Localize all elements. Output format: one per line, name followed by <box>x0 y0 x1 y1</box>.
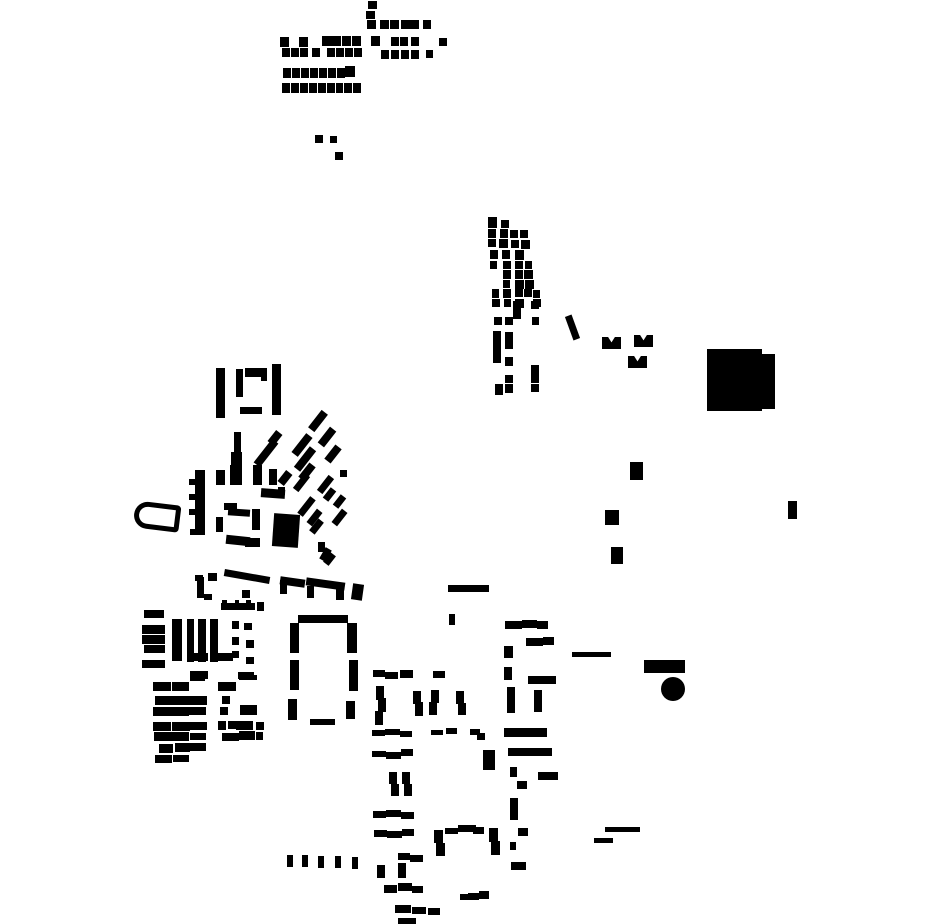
building-footprint <box>282 48 290 57</box>
building-footprint <box>503 261 511 269</box>
building-footprint <box>468 893 479 900</box>
building-footprint <box>483 750 495 770</box>
building-footprint <box>511 240 519 248</box>
building-footprint <box>524 270 533 279</box>
building-footprint <box>412 907 426 914</box>
building-footprint <box>605 510 619 525</box>
building-footprint <box>504 667 512 680</box>
building-footprint <box>492 289 499 298</box>
building-footprint <box>272 513 300 548</box>
building-footprint <box>525 261 532 269</box>
building-footprint <box>429 702 437 715</box>
building-footprint <box>308 410 328 432</box>
building-footprint <box>372 730 385 736</box>
building-footprint <box>353 83 361 93</box>
building-footprint <box>505 332 513 340</box>
building-footprint <box>257 602 264 611</box>
building-footprint <box>318 427 337 448</box>
building-footprint <box>448 585 489 592</box>
building-footprint <box>398 863 406 878</box>
building-footprint <box>533 290 540 298</box>
building-footprint <box>216 517 223 532</box>
building-footprint <box>503 280 510 288</box>
building-footprint <box>367 20 376 29</box>
building-footprint <box>398 918 416 924</box>
building-footprint <box>389 772 397 784</box>
building-footprint <box>310 68 318 78</box>
building-footprint <box>256 722 264 730</box>
building-footprint <box>377 865 385 878</box>
building-footprint <box>189 707 206 715</box>
building-footprint <box>349 660 358 691</box>
building-footprint <box>531 365 539 374</box>
building-footprint <box>385 672 398 679</box>
building-footprint-map <box>0 0 930 924</box>
building-footprint <box>309 83 317 93</box>
building-footprint <box>446 728 457 734</box>
building-footprint <box>788 501 797 519</box>
building-footprint <box>283 68 291 78</box>
building-footprint <box>189 494 195 500</box>
building-footprint <box>302 855 308 867</box>
building-footprint <box>173 696 190 705</box>
building-footprint <box>479 891 489 899</box>
building-footprint <box>707 349 762 411</box>
building-footprint <box>605 827 640 832</box>
building-footprint <box>280 37 289 47</box>
building-footprint <box>401 749 413 756</box>
building-footprint <box>336 48 344 57</box>
building-footprint <box>515 270 523 279</box>
building-footprint <box>373 670 385 677</box>
building-footprint <box>331 36 341 46</box>
building-footprint <box>510 842 516 850</box>
building-footprint <box>291 83 299 93</box>
building-footprint <box>236 369 243 397</box>
building-footprint <box>428 908 440 915</box>
building-footprint <box>543 637 554 645</box>
building-footprint <box>515 289 523 297</box>
building-footprint <box>300 83 308 93</box>
building-footprint <box>190 722 207 730</box>
building-footprint <box>228 508 250 517</box>
building-footprint <box>351 583 364 600</box>
building-footprint <box>532 317 539 325</box>
building-footprint <box>490 250 498 259</box>
building-footprint <box>222 696 230 704</box>
building-footprint <box>412 886 423 893</box>
building-footprint <box>261 369 267 381</box>
building-footprint <box>239 731 255 740</box>
building-footprint <box>534 690 542 712</box>
building-footprint <box>494 317 502 325</box>
building-footprint <box>190 675 205 681</box>
building-footprint <box>433 671 445 678</box>
building-footprint <box>144 610 164 618</box>
building-footprint <box>232 637 239 645</box>
building-footprint <box>520 230 528 238</box>
building-footprint <box>190 743 206 751</box>
building-footprint <box>222 733 239 741</box>
building-footprint <box>515 250 524 260</box>
building-footprint <box>398 883 412 891</box>
building-footprint <box>368 1 377 9</box>
building-footprint <box>411 37 419 46</box>
building-footprint <box>287 855 293 867</box>
building-footprint <box>423 20 431 29</box>
building-footprint <box>400 731 412 737</box>
building-footprint <box>218 682 236 691</box>
building-footprint <box>401 812 414 819</box>
building-footprint <box>142 660 165 668</box>
building-footprint <box>460 894 468 900</box>
building-footprint <box>630 462 643 480</box>
building-footprint <box>307 586 314 598</box>
building-footprint <box>477 733 485 740</box>
building-footprint <box>153 722 171 731</box>
building-footprint <box>513 310 521 319</box>
building-footprint <box>515 261 523 269</box>
building-footprint <box>190 696 207 705</box>
building-footprint <box>385 729 400 735</box>
building-footprint <box>493 331 501 339</box>
building-footprint <box>503 270 511 279</box>
building-footprint <box>354 48 362 57</box>
building-footprint <box>245 538 260 547</box>
building-footprint <box>401 50 409 59</box>
building-footprint <box>439 38 447 46</box>
building-footprint <box>372 751 386 757</box>
building-footprint <box>400 670 413 678</box>
building-footprint <box>510 230 518 238</box>
building-footprint <box>491 841 500 855</box>
building-footprint <box>352 857 358 869</box>
building-footprint <box>431 730 443 735</box>
building-footprint <box>510 798 518 820</box>
building-footprint <box>504 646 513 658</box>
building-footprint <box>240 407 262 414</box>
building-footprint <box>172 707 189 716</box>
building-footprint <box>371 36 380 46</box>
building-footprint <box>505 317 513 325</box>
building-footprint <box>330 136 337 143</box>
building-footprint <box>402 829 414 836</box>
building-footprint <box>501 220 509 228</box>
building-footprint <box>142 635 165 644</box>
building-footprint <box>400 37 408 46</box>
building-footprint <box>188 653 208 661</box>
building-footprint <box>224 569 271 584</box>
building-footprint <box>493 355 501 363</box>
building-footprint <box>505 384 513 393</box>
notched-building-footprint <box>602 337 621 349</box>
building-footprint <box>757 354 775 409</box>
building-footprint <box>172 682 189 691</box>
building-footprint <box>232 651 239 658</box>
building-footprint <box>292 68 300 78</box>
building-footprint <box>531 374 539 383</box>
building-footprint <box>246 640 254 648</box>
building-footprint <box>493 339 501 347</box>
building-footprint <box>252 509 260 530</box>
building-footprint <box>282 83 290 93</box>
building-footprint <box>336 588 344 600</box>
building-footprint <box>235 600 239 604</box>
building-footprint <box>153 707 172 716</box>
building-footprint <box>173 755 189 762</box>
building-footprint <box>374 830 387 837</box>
building-footprint <box>528 676 556 684</box>
building-footprint <box>499 239 508 248</box>
building-footprint <box>216 470 225 485</box>
building-footprint <box>345 48 353 57</box>
building-footprint <box>375 711 383 725</box>
building-footprint <box>505 621 522 629</box>
building-footprint <box>324 444 341 463</box>
building-footprint <box>565 315 580 341</box>
building-footprint <box>495 384 503 395</box>
building-footprint <box>524 289 532 297</box>
building-footprint <box>347 623 357 653</box>
building-footprint <box>288 699 297 720</box>
building-footprint <box>300 48 308 57</box>
building-footprint <box>503 289 511 298</box>
building-footprint <box>155 755 172 763</box>
building-footprint <box>373 811 386 818</box>
building-footprint <box>538 772 558 780</box>
building-footprint <box>415 702 423 716</box>
building-footprint <box>526 638 543 646</box>
building-footprint <box>299 37 308 47</box>
building-footprint <box>336 83 343 93</box>
building-footprint <box>398 853 410 860</box>
building-footprint <box>517 781 527 789</box>
building-footprint <box>269 469 277 485</box>
building-footprint <box>301 68 309 78</box>
building-footprint <box>328 68 336 78</box>
building-footprint <box>155 696 173 705</box>
building-footprint <box>410 855 423 862</box>
building-footprint <box>327 83 335 93</box>
building-footprint <box>319 68 327 78</box>
building-footprint <box>322 36 331 46</box>
building-footprint <box>278 470 293 486</box>
building-footprint <box>342 36 351 46</box>
building-footprint <box>190 733 206 740</box>
notched-building-footprint <box>634 335 653 347</box>
building-footprint <box>515 280 524 289</box>
building-footprint <box>390 20 399 29</box>
building-footprint <box>611 547 623 564</box>
building-footprint <box>518 828 528 836</box>
building-footprint <box>239 675 257 680</box>
building-footprint <box>426 50 433 58</box>
building-footprint <box>458 703 466 715</box>
building-footprint <box>172 619 182 661</box>
building-footprint <box>511 862 526 870</box>
building-footprint <box>253 465 262 485</box>
building-footprint <box>333 494 347 509</box>
building-footprint <box>531 301 539 309</box>
building-footprint <box>230 465 236 485</box>
building-footprint <box>290 623 299 653</box>
building-footprint <box>436 843 445 856</box>
building-footprint <box>434 830 443 843</box>
building-footprint <box>391 50 399 59</box>
building-footprint <box>327 48 335 57</box>
building-footprint <box>298 615 324 623</box>
building-footprint <box>312 48 320 57</box>
building-footprint <box>522 620 537 628</box>
building-footprint <box>154 732 172 741</box>
building-footprint <box>318 856 324 868</box>
building-footprint <box>189 479 195 485</box>
building-footprint <box>510 767 517 777</box>
building-footprint <box>324 615 348 623</box>
building-footprint <box>228 721 236 729</box>
building-footprint <box>244 623 252 630</box>
building-footprint <box>142 625 165 634</box>
building-footprint <box>493 347 501 355</box>
building-footprint <box>521 240 530 249</box>
building-footprint <box>387 831 402 838</box>
building-footprint <box>240 705 257 715</box>
building-footprint <box>175 743 190 752</box>
building-footprint <box>404 784 412 796</box>
building-footprint <box>410 20 419 29</box>
building-footprint <box>505 340 513 349</box>
building-footprint <box>346 701 355 719</box>
building-footprint <box>352 36 361 46</box>
building-footprint <box>488 217 497 228</box>
building-footprint <box>386 752 401 759</box>
building-footprint <box>315 135 323 143</box>
building-footprint <box>220 707 228 715</box>
building-footprint <box>460 826 469 832</box>
building-footprint <box>293 473 310 492</box>
building-footprint <box>500 229 508 238</box>
building-footprint <box>513 301 521 310</box>
building-footprint <box>378 698 386 712</box>
building-footprint <box>504 728 547 737</box>
building-footprint <box>411 50 419 59</box>
building-footprint <box>381 50 389 59</box>
building-footprint <box>291 48 299 57</box>
building-footprint <box>190 529 204 535</box>
building-footprint <box>340 470 347 477</box>
building-footprint <box>221 603 255 610</box>
building-footprint <box>445 828 458 834</box>
building-footprint <box>525 280 534 289</box>
building-footprint <box>242 590 250 598</box>
building-footprint <box>488 239 496 247</box>
building-footprint <box>278 487 285 495</box>
building-footprint <box>310 719 335 725</box>
building-footprint <box>332 509 348 527</box>
building-footprint <box>473 827 484 834</box>
building-footprint <box>246 600 251 604</box>
building-footprint <box>391 37 399 46</box>
building-footprint <box>531 384 539 392</box>
building-footprint <box>594 838 613 843</box>
building-footprint <box>144 645 165 653</box>
building-footprint <box>401 20 410 29</box>
building-footprint <box>505 357 513 366</box>
building-footprint <box>508 748 552 756</box>
building-footprint <box>492 299 500 307</box>
building-footprint <box>208 573 217 581</box>
building-footprint <box>290 660 299 690</box>
building-footprint <box>644 660 685 673</box>
building-footprint <box>386 810 401 817</box>
building-footprint <box>366 11 375 19</box>
building-footprint <box>272 364 281 415</box>
building-footprint <box>172 732 189 741</box>
building-footprint <box>504 299 511 307</box>
building-footprint <box>280 580 287 594</box>
building-footprint <box>449 614 455 625</box>
building-footprint <box>195 575 203 581</box>
ring-building-footprint <box>133 500 182 532</box>
building-footprint <box>172 722 190 731</box>
building-footprint <box>502 250 510 259</box>
building-footprint <box>222 600 227 604</box>
building-footprint <box>505 375 513 383</box>
building-footprint <box>153 682 171 691</box>
building-footprint <box>344 83 352 93</box>
building-footprint <box>216 368 225 418</box>
building-footprint <box>159 744 173 753</box>
building-footprint <box>380 20 389 29</box>
building-footprint <box>218 721 226 730</box>
round-tank <box>661 677 685 701</box>
building-footprint <box>246 657 254 664</box>
building-footprint <box>335 856 341 868</box>
building-footprint <box>537 621 548 629</box>
building-footprint <box>384 885 397 893</box>
notched-building-footprint <box>628 356 647 368</box>
building-footprint <box>507 687 515 713</box>
building-footprint <box>488 229 496 238</box>
building-footprint <box>572 652 611 657</box>
building-footprint <box>335 152 343 160</box>
building-footprint <box>210 653 233 661</box>
building-footprint <box>345 66 355 77</box>
building-footprint <box>337 68 345 78</box>
building-footprint <box>189 509 195 515</box>
building-footprint <box>318 83 326 93</box>
building-footprint <box>402 772 410 784</box>
building-footprint <box>204 594 212 600</box>
building-footprint <box>236 721 253 730</box>
building-footprint <box>489 828 498 842</box>
building-footprint <box>490 261 497 269</box>
building-footprint <box>256 732 263 740</box>
building-footprint <box>395 905 411 913</box>
building-footprint <box>232 621 239 629</box>
building-footprint <box>391 784 399 796</box>
building-footprint <box>195 470 205 535</box>
